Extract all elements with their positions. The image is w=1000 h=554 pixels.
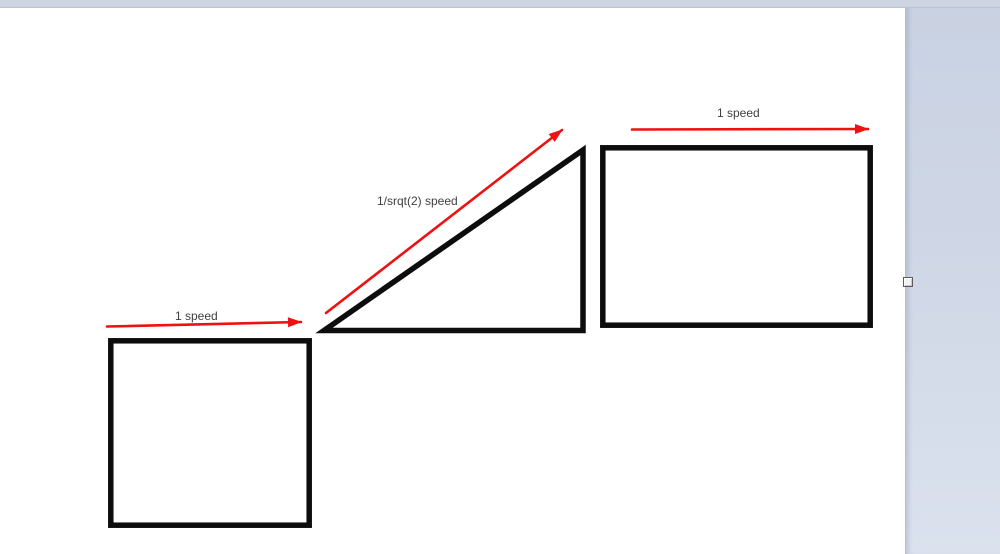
rect-speed-label[interactable]: 1 speed	[717, 106, 760, 120]
square-speed-label[interactable]: 1 speed	[175, 309, 218, 323]
triangle-ramp-shape[interactable]	[324, 150, 583, 331]
diagram-layer: 1 speed 1/srqt(2) speed 1 speed	[0, 0, 1000, 554]
panel-resize-handle[interactable]	[903, 277, 913, 287]
top-bar	[0, 0, 1000, 8]
app-window: 1 speed 1/srqt(2) speed 1 speed	[0, 0, 1000, 554]
square-shape[interactable]	[111, 341, 309, 525]
ramp-speed-label[interactable]: 1/srqt(2) speed	[377, 194, 458, 208]
rect-speed-arrow[interactable]	[632, 129, 868, 130]
rectangle-shape[interactable]	[603, 148, 870, 325]
side-panel	[905, 0, 1000, 554]
